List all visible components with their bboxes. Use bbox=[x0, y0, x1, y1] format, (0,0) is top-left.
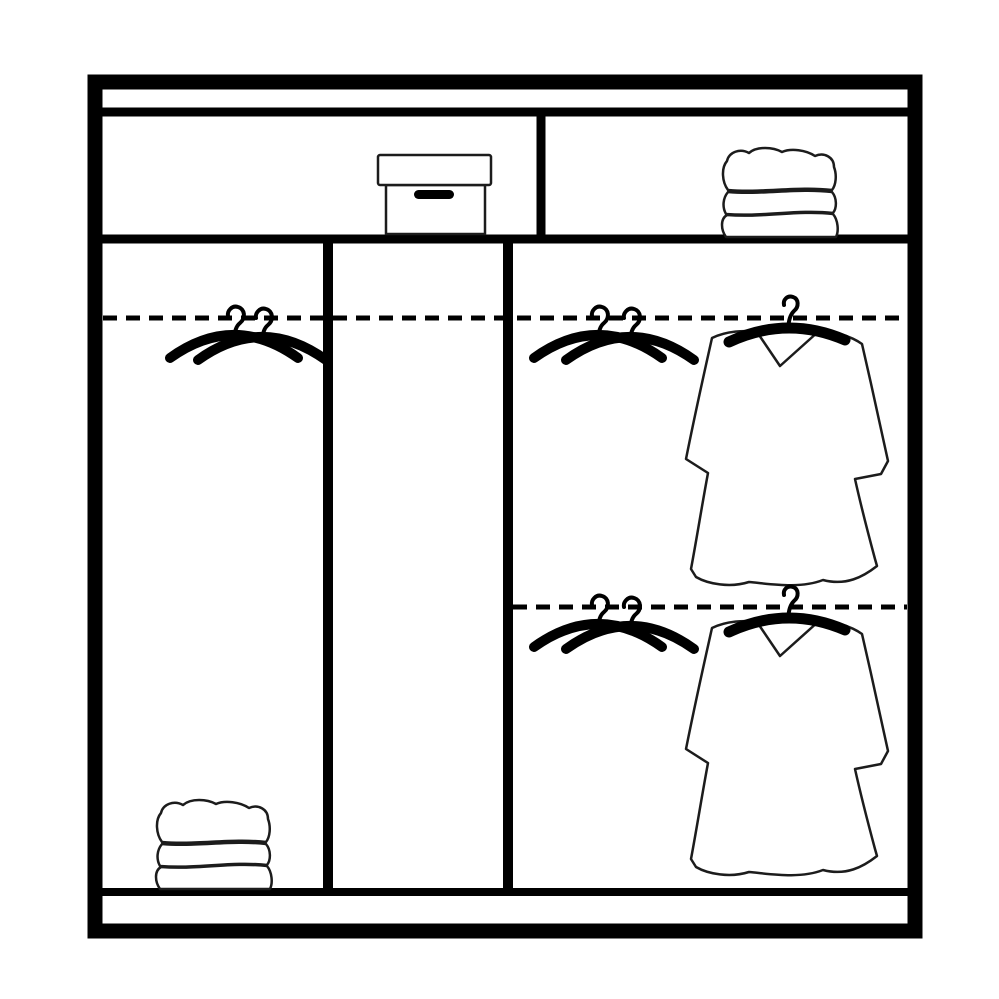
wardrobe-schematic-svg bbox=[0, 0, 999, 999]
left-section-hangers bbox=[170, 307, 326, 360]
right-section-lower-hangers bbox=[534, 596, 694, 649]
empty-hanger bbox=[534, 596, 662, 647]
empty-hanger bbox=[534, 307, 662, 358]
linen-stack-bottom-left bbox=[156, 800, 272, 889]
right-section-upper-hangers bbox=[534, 307, 694, 360]
empty-hanger bbox=[170, 307, 298, 358]
hanging-garment-upper bbox=[686, 297, 888, 586]
storage-box bbox=[378, 155, 491, 234]
storage-box-lid bbox=[378, 155, 491, 185]
wardrobe-diagram bbox=[0, 0, 999, 999]
linen-stack-top-shelf bbox=[722, 148, 838, 237]
hanging-garment-lower bbox=[686, 587, 888, 876]
storage-box-handle bbox=[414, 190, 454, 199]
